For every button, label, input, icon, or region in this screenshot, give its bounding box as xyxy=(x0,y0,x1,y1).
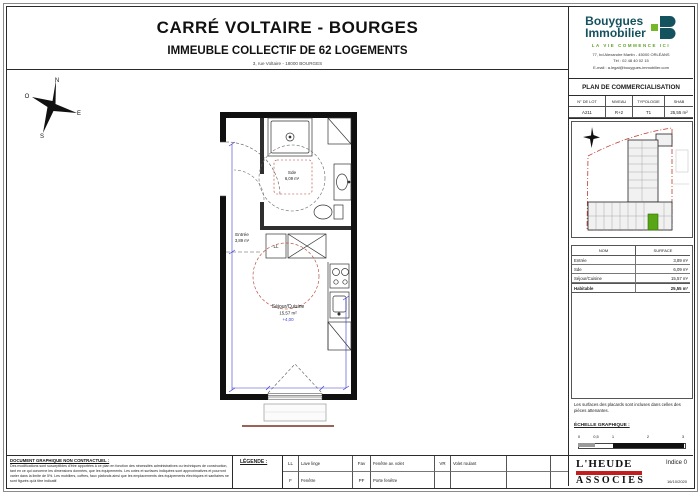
washbasin xyxy=(334,164,351,200)
compass-e: E xyxy=(77,111,81,117)
col-header: SHAB xyxy=(665,96,693,107)
fridge-space xyxy=(328,322,351,350)
disclaimer: DOCUMENT GRAPHIQUE NON CONTRACTUEL : Des… xyxy=(7,456,233,488)
title-block: CARRÉ VOLTAIRE - BOURGES IMMEUBLE COLLEC… xyxy=(7,7,568,70)
legend-empty-cell xyxy=(507,472,551,488)
scale-tick: 0,5 xyxy=(593,434,599,439)
surface-row-name: Entrée xyxy=(572,256,636,265)
kitchen-counter xyxy=(328,262,351,350)
brand-name-line2: Immobilier xyxy=(585,28,646,39)
legend-abbr xyxy=(435,472,451,488)
compass-s: S xyxy=(40,134,44,138)
brand-email: E-mail : a.legal@bouygues-immobilier.com xyxy=(569,65,693,71)
legend-abbr: Fav xyxy=(353,456,371,472)
surface-total-name: Habitable xyxy=(572,283,636,293)
key-plan-drawing xyxy=(572,122,690,235)
entry-door-swing xyxy=(226,142,280,196)
legend-empty-cell xyxy=(551,472,568,488)
scale-tick: 2 xyxy=(647,434,649,439)
col-header: NIVEAU xyxy=(606,96,633,107)
surface-table: NOM SURFACE Entrée 3,89 m² Sde 6,09 m² S… xyxy=(571,245,693,399)
legend-label-text: Fenêtre xyxy=(299,472,353,488)
floor-plan: LL xyxy=(208,102,366,436)
scale-label: ÉCHELLE GRAPHIQUE : xyxy=(574,423,630,428)
legend-label-text: Volet roulant xyxy=(451,456,507,472)
brand-block: Bouygues Immobilier LA VIE COMMENCE ICI … xyxy=(569,7,693,79)
legend-title: LÉGENDE : xyxy=(237,456,283,488)
window-porte-fenetre xyxy=(268,364,322,399)
scale-tick: 0 xyxy=(578,434,580,439)
revision-index: Indice 0 xyxy=(666,460,687,466)
revision-date: 16/10/2020 xyxy=(667,479,687,484)
architect-logo: L'HEUDE ASSOCIES xyxy=(576,459,645,486)
room-label-sde: Sde xyxy=(288,170,297,175)
highlighted-unit xyxy=(648,214,658,230)
surface-row-value: 3,89 m² xyxy=(636,256,690,265)
scale-tick: 1 xyxy=(612,434,614,439)
bathroom-fixtures xyxy=(268,118,351,219)
compass-rose: N E S O xyxy=(18,76,82,143)
legend-empty-cell xyxy=(507,456,551,472)
scale-tick: 3 xyxy=(682,434,684,439)
commercialisation-table: N° DE LOT NIVEAU TYPOLOGIE SHAB A211 R+2… xyxy=(569,96,693,119)
legend-abbr: VR xyxy=(435,456,451,472)
lot-type: T1 xyxy=(633,107,665,118)
project-address: 3, rue Voltaire - 18000 BOURGES xyxy=(7,61,568,66)
scale-seg-black xyxy=(613,443,684,448)
north-arrow-icon xyxy=(583,127,600,148)
legend-table: LL Lave linge Fav Fenêtre av. volet VR V… xyxy=(283,456,568,488)
architect-name-line1: L'HEUDE xyxy=(576,459,645,470)
surface-col-header: NOM xyxy=(572,246,636,256)
col-header: TYPOLOGIE xyxy=(633,96,665,107)
page-subtitle: IMMEUBLE COLLECTIF DE 62 LOGEMENTS xyxy=(7,45,568,57)
placard-note: Les surfaces des placards sont incluses … xyxy=(574,402,688,415)
surface-row-value: 15,57 m² xyxy=(636,274,690,283)
hob xyxy=(330,264,349,288)
toilet xyxy=(314,205,343,219)
surface-row-value: 6,09 m² xyxy=(636,265,690,274)
lot-number: A211 xyxy=(569,107,606,118)
plan-sheet: { "header": { "title": "CARRÉ VOLTAIRE -… xyxy=(0,0,700,494)
placard-note-line2: pièces attenantes. xyxy=(574,408,688,414)
brand-contact: 77, bd Alexandre Martin - 45000 ORLÉANS … xyxy=(569,52,693,71)
room-labels: Entrée 3,89 m² Sde 6,09 m² Séjour/Cuisin… xyxy=(235,170,305,322)
exterior-walls xyxy=(220,112,357,400)
bottom-strip: DOCUMENT GRAPHIQUE NON CONTRACTUEL : Des… xyxy=(7,455,568,488)
partition-walls xyxy=(260,118,351,230)
lot-level: R+2 xyxy=(606,107,633,118)
brand-name: Bouygues Immobilier xyxy=(585,16,646,39)
compass-o: O xyxy=(25,94,30,100)
building-footprint xyxy=(588,134,672,230)
brand-tagline: LA VIE COMMENCE ICI xyxy=(569,43,693,48)
disclaimer-text: Des modifications sont susceptibles d'êt… xyxy=(10,464,229,483)
floor-level: +4,00 xyxy=(282,317,294,322)
legend-empty-cell xyxy=(551,456,568,472)
linen-closet xyxy=(328,118,351,144)
legend-abbr: F xyxy=(283,472,299,488)
compass-star-icon xyxy=(32,80,77,133)
legend-label-text: Porte fenêtre xyxy=(371,472,435,488)
graphic-scale: 0 0,5 1 2 3 xyxy=(578,434,686,454)
surface-row-name: Séjour/Cuisine xyxy=(572,274,636,283)
legend-label-text: Lave linge xyxy=(299,456,353,472)
surface-col-header: SURFACE xyxy=(636,246,690,256)
window-opening-swing xyxy=(268,364,322,393)
legend-label-text xyxy=(451,472,507,488)
commercialisation-title: PLAN DE COMMERCIALISATION xyxy=(569,79,693,96)
disclaimer-title: DOCUMENT GRAPHIQUE NON CONTRACTUEL : xyxy=(10,458,229,463)
compass-n: N xyxy=(55,78,59,84)
legend-abbr: PF xyxy=(353,472,371,488)
architect-name-line2: ASSOCIES xyxy=(576,476,645,486)
scale-seg-gray xyxy=(578,443,595,447)
architect-block: L'HEUDE ASSOCIES Indice 0 16/10/2020 xyxy=(569,455,693,488)
col-header: N° DE LOT xyxy=(569,96,606,107)
key-plan xyxy=(571,121,693,238)
room-area-sde: 6,09 m² xyxy=(285,176,300,181)
legend-abbr: LL xyxy=(283,456,299,472)
bouygues-logo-icon xyxy=(651,15,677,40)
room-label-sejour: Séjour/Cuisine xyxy=(272,304,305,310)
surface-total-value: 25,55 m² xyxy=(636,283,690,293)
legend-label-text: Fenêtre av. volet xyxy=(371,456,435,472)
surface-row-name: Sde xyxy=(572,265,636,274)
room-area-sejour: 15,57 m² xyxy=(279,311,297,316)
balcony-slab xyxy=(242,404,334,426)
room-area-entree: 3,89 m² xyxy=(235,238,250,243)
lot-area: 25,55 m² xyxy=(665,107,693,118)
page-title: CARRÉ VOLTAIRE - BOURGES xyxy=(7,18,568,38)
room-label-entree: Entrée xyxy=(235,232,249,237)
